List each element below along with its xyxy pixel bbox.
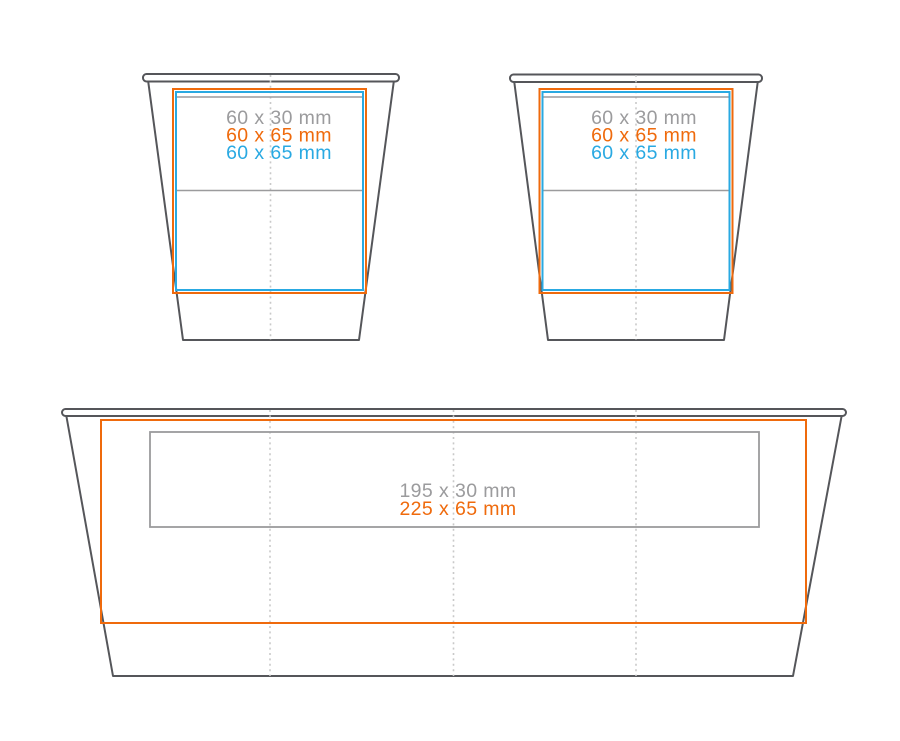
diagram-canvas: 60 x 30 mm 60 x 65 mm 60 x 65 mm 60 x 30…	[0, 0, 900, 741]
cup-right-diagram: 60 x 30 mm 60 x 65 mm 60 x 65 mm	[510, 75, 762, 341]
cup-right-label-blue: 60 x 65 mm	[591, 142, 697, 164]
cup-left-diagram: 60 x 30 mm 60 x 65 mm 60 x 65 mm	[143, 74, 399, 340]
print-template-diagram: 60 x 30 mm 60 x 65 mm 60 x 65 mm 60 x 30…	[0, 0, 900, 741]
cup-left-label-blue: 60 x 65 mm	[226, 142, 332, 164]
tray-label-orange: 225 x 65 mm	[399, 498, 516, 520]
tray-diagram: 195 x 30 mm 225 x 65 mm	[62, 409, 846, 676]
